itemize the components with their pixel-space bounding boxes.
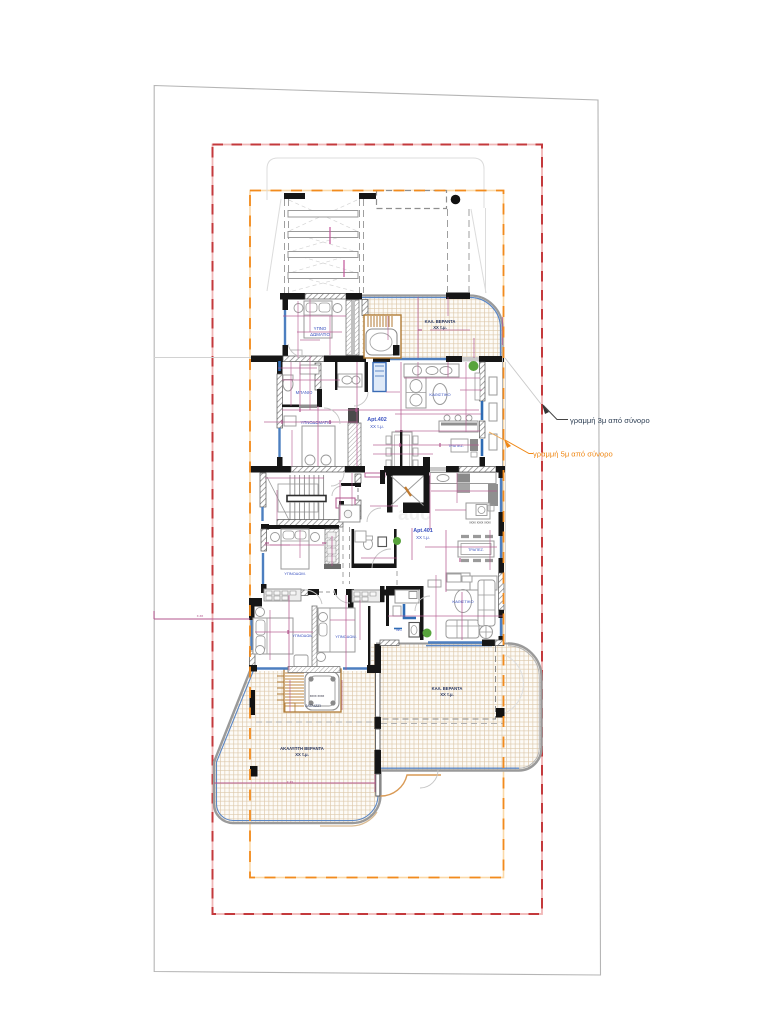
svg-text:ΧΧ τ.μ.: ΧΧ τ.μ. (433, 325, 447, 330)
svg-text:ΥΠΝΟΔΩΜ.: ΥΠΝΟΔΩΜ. (284, 571, 306, 576)
svg-text:ΚΑΛ. ΒΕΡΑΝΤΑ: ΚΑΛ. ΒΕΡΑΝΤΑ (425, 319, 456, 324)
svg-text:xxxx xxxx xxxx: xxxx xxxx xxxx (469, 521, 491, 525)
svg-text:ΥΠΝΟ: ΥΠΝΟ (314, 326, 327, 331)
svg-text:ΚΑΘΙΣΤΙΚΟ: ΚΑΘΙΣΤΙΚΟ (429, 392, 450, 397)
svg-text:ΤΡΑΠΕΖ.: ΤΡΑΠΕΖ. (468, 548, 484, 552)
svg-text:Apt.402: Apt.402 (367, 417, 386, 423)
svg-text:γραμμή 3μ από σύνορο: γραμμή 3μ από σύνορο (570, 416, 650, 425)
svg-text:ΧΧ τ.μ.: ΧΧ τ.μ. (295, 752, 309, 757)
svg-text:xxxx xxxx: xxxx xxxx (310, 694, 325, 698)
svg-text:ΥΠΝΟΔΩΜΑΤΙΟ: ΥΠΝΟΔΩΜΑΤΙΟ (301, 420, 333, 425)
svg-text:JACUZZI: JACUZZI (305, 704, 321, 708)
svg-text:ΚΑΛ. ΒΕΡΑΝΤΑ: ΚΑΛ. ΒΕΡΑΝΤΑ (432, 686, 463, 691)
svg-text:ΧΧ τ.μ.: ΧΧ τ.μ. (370, 424, 384, 429)
svg-text:x.xx: x.xx (287, 780, 294, 784)
svg-text:ΑΚΑΛΥΠΤΗ ΒΕΡΑΝΤΑ: ΑΚΑΛΥΠΤΗ ΒΕΡΑΝΤΑ (280, 746, 324, 751)
svg-text:ΧΧ τ.μ.: ΧΧ τ.μ. (416, 535, 430, 540)
svg-text:γραμμή 5μ από σύνορο: γραμμή 5μ από σύνορο (533, 450, 613, 459)
svg-text:x.xx: x.xx (197, 614, 204, 618)
svg-text:ΜΠΑΝΙΟ: ΜΠΑΝΙΟ (296, 390, 313, 395)
svg-text:ΔΩΜΑΤΙΟ: ΔΩΜΑΤΙΟ (310, 332, 330, 337)
svg-text:ΚΑΘΙΣΤΙΚΟ: ΚΑΘΙΣΤΙΚΟ (452, 599, 473, 604)
svg-text:ΥΠΝΟΔΩΜ.: ΥΠΝΟΔΩΜ. (292, 633, 314, 638)
svg-text:ΧΧ τ.μ.: ΧΧ τ.μ. (440, 692, 454, 697)
